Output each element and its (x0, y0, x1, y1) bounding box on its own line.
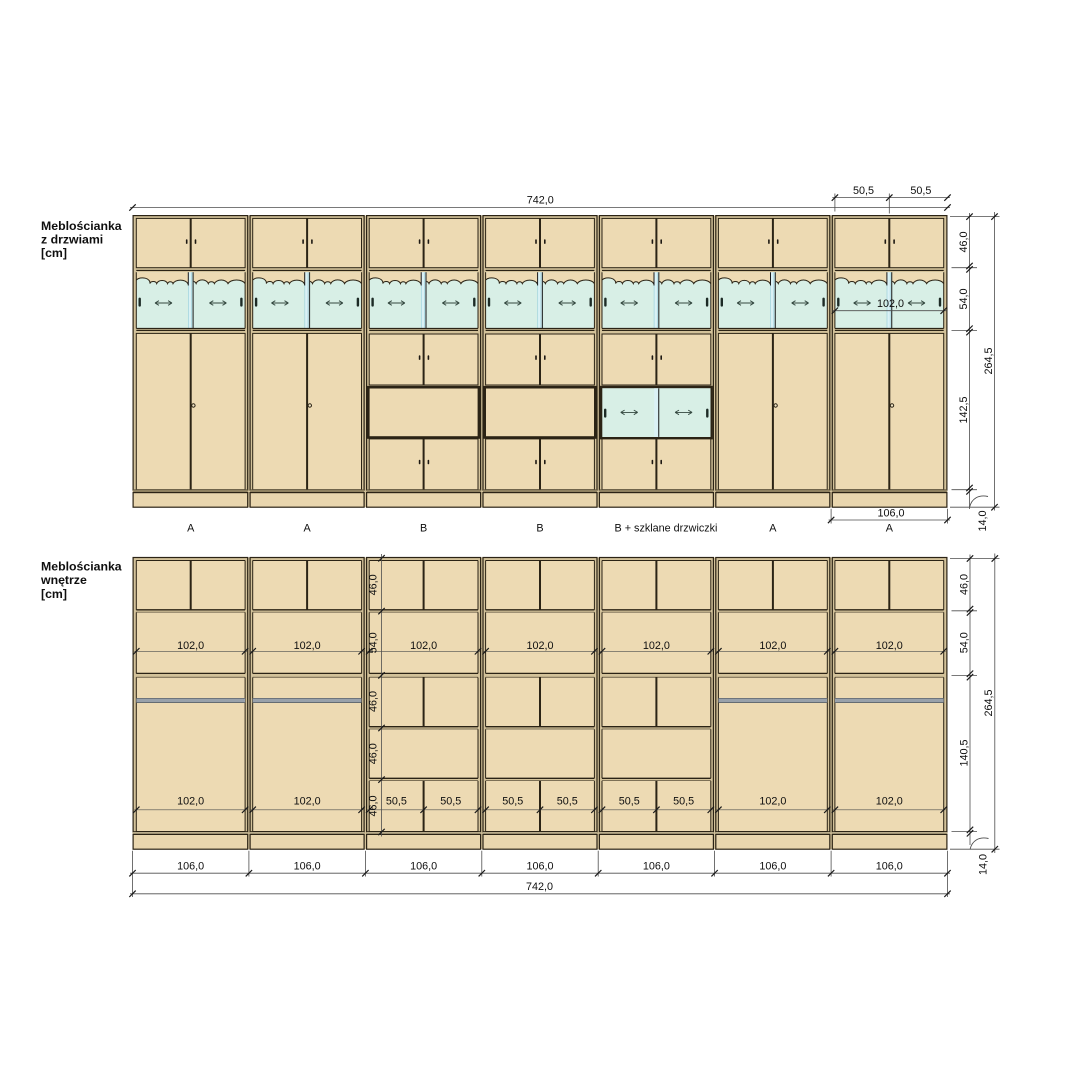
svg-text:50,5: 50,5 (502, 796, 523, 808)
svg-text:Meblościanka: Meblościanka (41, 560, 122, 574)
svg-text:50,5: 50,5 (440, 796, 461, 808)
svg-text:102,0: 102,0 (759, 795, 786, 807)
svg-text:102,0: 102,0 (759, 640, 786, 652)
svg-text:46,0: 46,0 (368, 743, 380, 764)
svg-text:B: B (420, 523, 427, 535)
svg-text:102,0: 102,0 (643, 640, 670, 652)
svg-text:54,0: 54,0 (958, 288, 970, 309)
svg-text:z drzwiami: z drzwiami (41, 232, 103, 246)
svg-text:Meblościanka: Meblościanka (41, 219, 122, 233)
svg-text:102,0: 102,0 (294, 640, 321, 652)
svg-text:14,0: 14,0 (977, 510, 989, 531)
svg-text:[cm]: [cm] (41, 246, 67, 260)
svg-text:102,0: 102,0 (177, 640, 204, 652)
svg-text:46,0: 46,0 (368, 691, 380, 712)
svg-text:742,0: 742,0 (527, 195, 554, 207)
svg-text:50,5: 50,5 (619, 796, 640, 808)
svg-text:106,0: 106,0 (526, 861, 553, 873)
svg-text:102,0: 102,0 (877, 298, 904, 310)
svg-text:264,5: 264,5 (983, 689, 995, 716)
svg-text:102,0: 102,0 (177, 795, 204, 807)
svg-text:B: B (536, 523, 543, 535)
svg-text:54,0: 54,0 (368, 632, 380, 653)
svg-text:50,5: 50,5 (910, 185, 931, 197)
svg-text:102,0: 102,0 (876, 795, 903, 807)
svg-text:46,0: 46,0 (368, 795, 380, 816)
svg-text:46,0: 46,0 (958, 231, 970, 252)
svg-text:46,0: 46,0 (958, 574, 970, 595)
svg-text:[cm]: [cm] (41, 587, 67, 601)
svg-text:B + szklane drzwiczki: B + szklane drzwiczki (615, 523, 718, 535)
svg-text:102,0: 102,0 (526, 640, 553, 652)
svg-text:106,0: 106,0 (177, 861, 204, 873)
svg-text:106,0: 106,0 (410, 861, 437, 873)
svg-text:A: A (187, 523, 195, 535)
svg-text:50,5: 50,5 (853, 185, 874, 197)
svg-text:A: A (769, 523, 777, 535)
svg-text:46,0: 46,0 (368, 574, 380, 595)
svg-text:106,0: 106,0 (876, 861, 903, 873)
svg-text:102,0: 102,0 (876, 640, 903, 652)
svg-text:106,0: 106,0 (759, 861, 786, 873)
svg-text:50,5: 50,5 (386, 796, 407, 808)
svg-text:140,5: 140,5 (958, 739, 970, 766)
svg-text:742,0: 742,0 (526, 881, 553, 893)
svg-text:102,0: 102,0 (410, 640, 437, 652)
svg-text:50,5: 50,5 (557, 796, 578, 808)
svg-text:102,0: 102,0 (294, 795, 321, 807)
svg-text:A: A (886, 523, 894, 535)
svg-text:106,0: 106,0 (294, 861, 321, 873)
svg-text:54,0: 54,0 (958, 632, 970, 653)
svg-text:50,5: 50,5 (673, 796, 694, 808)
svg-text:14,0: 14,0 (978, 854, 990, 875)
svg-text:106,0: 106,0 (643, 861, 670, 873)
svg-text:264,5: 264,5 (983, 347, 995, 374)
svg-text:142,5: 142,5 (958, 396, 970, 423)
svg-text:A: A (303, 523, 311, 535)
svg-text:wnętrze: wnętrze (40, 573, 87, 587)
svg-text:106,0: 106,0 (877, 508, 904, 520)
